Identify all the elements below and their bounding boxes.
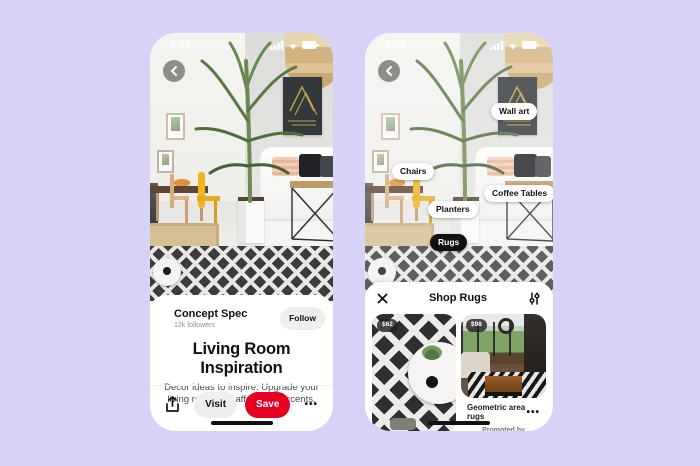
wifi-icon: [287, 41, 299, 50]
status-bar: 8:08: [150, 33, 333, 57]
more-options-icon[interactable]: •••: [304, 399, 318, 410]
small-plant: [422, 344, 442, 360]
tag-rugs-selected[interactable]: Rugs: [430, 234, 467, 251]
product-meta: Geometric area rugs ••• Promoted by Home…: [461, 398, 546, 431]
creator-followers: 12k followers: [174, 322, 280, 329]
battery-icon: [522, 41, 539, 50]
feet: [390, 418, 416, 430]
phone-pin-detail: 8:08 Concept Spec 12k followers Follow L: [150, 33, 333, 431]
wood-coffee-table: [485, 376, 522, 392]
home-indicator: [211, 421, 273, 425]
shop-rugs-sheet: Shop Rugs $62 $98: [365, 282, 553, 431]
pin-detail-card: Concept Spec 12k followers Follow Living…: [150, 295, 333, 431]
palm-plant: [188, 33, 308, 206]
status-time: 8:08: [385, 40, 406, 51]
product-row: $62 $98: [365, 310, 553, 431]
follow-button[interactable]: Follow: [280, 307, 325, 330]
tag-chairs[interactable]: Chairs: [392, 163, 434, 180]
tag-coffee-tables[interactable]: Coffee Tables: [484, 185, 553, 202]
status-time: 8:08: [170, 40, 191, 51]
wifi-icon: [507, 41, 519, 50]
dark-cabinet: [524, 314, 546, 376]
promoted-label: Promoted by: [467, 427, 540, 431]
table-leg: [156, 193, 159, 221]
status-icons: [490, 41, 539, 50]
tag-wall-art[interactable]: Wall art: [491, 103, 537, 120]
black-bowl: [426, 376, 438, 388]
cushion: [320, 156, 333, 177]
product-name: Geometric area rugs: [467, 403, 526, 421]
price-badge: $98: [466, 319, 487, 332]
more-options-icon[interactable]: •••: [526, 407, 540, 418]
small-picture-frame: [166, 113, 185, 140]
price-badge: $62: [377, 319, 398, 332]
back-button[interactable]: [378, 60, 400, 82]
chevron-left-icon: [385, 66, 393, 76]
tag-planters[interactable]: Planters: [428, 201, 478, 218]
product-card-rug-closeup[interactable]: $62: [372, 314, 456, 431]
sheet-header: Shop Rugs: [365, 282, 553, 310]
back-button[interactable]: [163, 60, 185, 82]
pin-title: Living Room Inspiration: [150, 340, 333, 378]
visit-button[interactable]: Visit: [194, 392, 237, 418]
save-button[interactable]: Save: [245, 392, 290, 418]
chevron-left-icon: [170, 66, 178, 76]
battery-icon: [302, 41, 319, 50]
close-icon[interactable]: [377, 293, 388, 304]
creator-row: Concept Spec 12k followers Follow: [150, 295, 333, 330]
status-bar: 8:08: [365, 33, 553, 57]
status-icons: [270, 41, 319, 50]
creator-name: Concept Spec: [174, 308, 280, 320]
signal-icon: [270, 41, 284, 50]
creator-info: Concept Spec 12k followers: [174, 308, 280, 329]
sheet-title: Shop Rugs: [388, 292, 528, 304]
share-icon[interactable]: [165, 396, 180, 413]
home-indicator: [428, 421, 490, 425]
round-side-table: [153, 258, 181, 286]
phone-shop-the-look: 8:08 Wall art Chairs Coffee Tables Plant…: [365, 33, 553, 431]
product-card-geometric-rug[interactable]: $98 Geometric area rugs ••• Promoted by: [461, 314, 546, 431]
wood-chair: [170, 174, 189, 224]
filter-icon[interactable]: [528, 292, 541, 305]
small-picture-frame: [157, 150, 174, 173]
signal-icon: [490, 41, 504, 50]
product-photo: $98: [461, 314, 546, 398]
